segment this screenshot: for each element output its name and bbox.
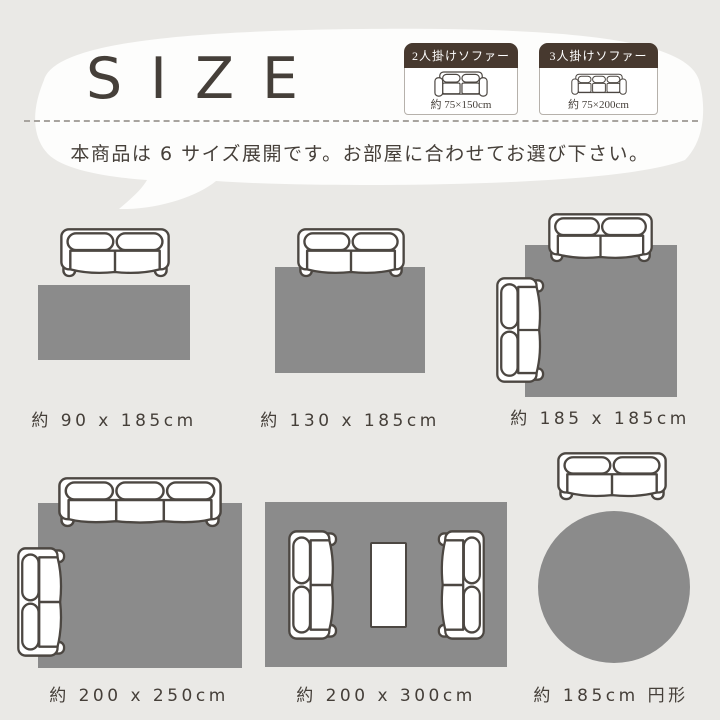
legend-3seater-card: 3人掛けソファー 約 75×200cm: [539, 43, 658, 115]
sofa-2seat-top-icon: [557, 452, 667, 503]
size-guide-infographic: SIZE 本商品は 6 サイズ展開です。お部屋に合わせてお選び下さい。 2人掛け…: [0, 0, 720, 720]
dashed-divider: [24, 120, 698, 122]
sofa-2seat-side-icon: [435, 530, 485, 640]
rug-90x185: [38, 285, 190, 360]
legend-3seater-title: 3人掛けソファー: [539, 43, 658, 68]
sofa-3seat-top-icon: [58, 477, 222, 530]
sofa-2seat-top-icon: [548, 213, 653, 265]
page-title: SIZE: [86, 46, 326, 112]
description-text: 本商品は 6 サイズ展開です。お部屋に合わせてお選び下さい。: [0, 139, 720, 166]
rug-185x185: [525, 245, 677, 397]
legend-2seater-body: 約 75×150cm: [405, 68, 517, 114]
size-label-185-round: 約 185cm 円形: [533, 681, 688, 706]
table-icon: [370, 542, 407, 628]
sofa-3seat-front-icon: [571, 71, 627, 99]
sofa-2seat-side-icon: [17, 547, 68, 657]
size-label-185x185: 約 185 x 185cm: [510, 404, 690, 429]
legend-2seater-card: 2人掛けソファー 約 75×150cm: [404, 43, 518, 115]
sofa-2seat-top-icon: [60, 228, 170, 280]
size-label-130x185: 約 130 x 185cm: [260, 406, 440, 431]
legend-2seater-size: 約 75×150cm: [405, 96, 517, 112]
size-label-200x250: 約 200 x 250cm: [49, 681, 229, 706]
rug-185-round: [538, 511, 690, 663]
size-label-90x185: 約 90 x 185cm: [31, 406, 196, 431]
speech-bubble: [0, 0, 720, 230]
legend-3seater-size: 約 75×200cm: [540, 96, 657, 112]
rug-130x185: [275, 267, 425, 373]
sofa-2seat-side-icon: [496, 277, 547, 383]
legend-2seater-title: 2人掛けソファー: [404, 43, 518, 68]
legend-3seater-body: 約 75×200cm: [540, 68, 657, 114]
size-label-200x300: 約 200 x 300cm: [296, 681, 476, 706]
sofa-2seat-top-icon: [297, 228, 405, 280]
sofa-2seat-side-icon: [288, 530, 340, 640]
sofa-2seat-front-icon: [433, 71, 489, 99]
